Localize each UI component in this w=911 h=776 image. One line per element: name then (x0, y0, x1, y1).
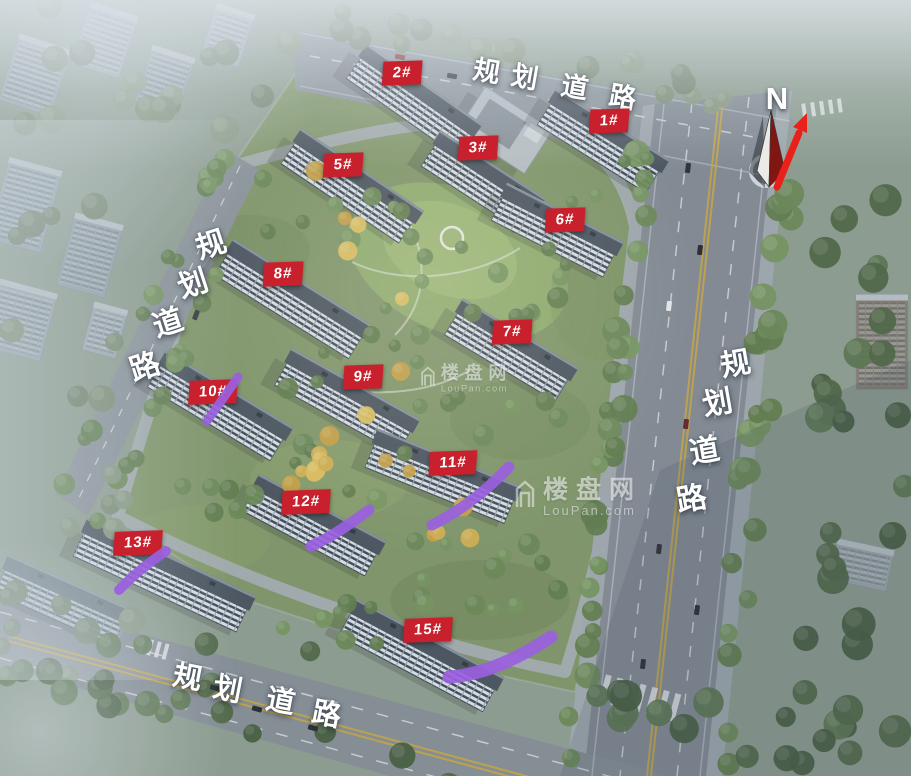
crosswalk (138, 98, 842, 721)
car (252, 705, 263, 712)
building-slab (407, 125, 546, 238)
car (697, 245, 703, 256)
building-badge-1: 1# (589, 108, 629, 133)
road-label-char: 划 (508, 53, 541, 96)
context-block (134, 45, 195, 116)
building-slab (430, 293, 578, 408)
building-badge-6: 6# (545, 207, 585, 232)
loupan-logo-icon (420, 365, 436, 387)
arrow-12 (311, 510, 369, 546)
car (656, 544, 662, 555)
car (210, 684, 221, 691)
building-badge-9: 9# (343, 364, 383, 389)
road-label-char: 路 (672, 472, 709, 521)
residential-buildings (0, 38, 670, 719)
road-north (295, 30, 795, 180)
building-slab (267, 123, 424, 250)
road-label-char: 规 (716, 337, 753, 386)
building-slab (260, 343, 420, 460)
north-arrow (777, 133, 799, 187)
compass-needle-shadow (749, 116, 765, 188)
road-east (584, 92, 778, 776)
context-block (829, 538, 894, 591)
context-block (82, 301, 129, 358)
road-east-sidewalk2 (706, 91, 792, 776)
site-ground (118, 64, 668, 692)
context-block (856, 295, 908, 390)
road-south (0, 596, 670, 776)
road-labels: 规划道路规划道路规划道路规划道路 (0, 0, 911, 776)
road-label-char: 路 (606, 73, 639, 116)
road-west (56, 150, 260, 516)
building-badge-10: 10# (188, 379, 238, 405)
road-label-char: 路 (123, 338, 165, 389)
car (395, 54, 406, 61)
compass-needle-west (757, 110, 771, 187)
car (694, 605, 700, 616)
building-badge-2: 2# (382, 60, 422, 85)
building-context (0, 550, 133, 652)
arrow-15 (449, 637, 551, 677)
context-block (71, 1, 139, 78)
building-badge-15: 15# (403, 617, 453, 643)
road-label-char: 道 (146, 294, 188, 345)
car (308, 724, 319, 731)
north-arrow-head (793, 113, 807, 133)
building-slab (228, 469, 386, 583)
road-label-char: 划 (171, 255, 213, 306)
building-slab (324, 593, 504, 719)
building-slab (351, 425, 523, 531)
building-badge-3: 3# (458, 135, 498, 160)
car (192, 309, 200, 320)
roads (0, 30, 843, 776)
watermark-name: 楼盘网 (441, 364, 512, 383)
internal-road-loop (118, 120, 639, 672)
building-slab (59, 513, 256, 638)
building-slab (332, 38, 483, 163)
context-block (0, 278, 58, 361)
building-slab (133, 345, 293, 467)
car (447, 73, 458, 80)
car (666, 301, 672, 312)
building-badge-8: 8# (263, 261, 303, 286)
context-buildings (0, 1, 908, 591)
podium-building (441, 80, 553, 184)
building-badge-7: 7# (492, 319, 532, 344)
watermark: 楼盘网 LouPan.com (420, 364, 512, 394)
watermark: 楼盘网 LouPan.com (514, 477, 642, 518)
building-badge-5: 5# (323, 152, 363, 177)
courtyard-feature (441, 227, 463, 249)
context-block (56, 212, 124, 297)
compass-north-label: N (766, 81, 788, 117)
building-badge-11: 11# (428, 450, 477, 476)
car (683, 419, 689, 430)
road-label-char: 道 (685, 424, 722, 473)
road-label-char: 道 (558, 63, 591, 106)
road-label-char: 道 (263, 676, 299, 723)
trees (0, 0, 911, 776)
purple-arrows (119, 377, 551, 677)
arrow-13 (119, 551, 166, 590)
building-badge-12: 12# (281, 489, 331, 515)
watermark-domain: LouPan.com (543, 503, 642, 518)
context-block (0, 33, 72, 117)
building-slab (523, 83, 670, 199)
compass-needle-east (769, 110, 785, 187)
building-slab (477, 178, 624, 284)
car (685, 163, 691, 174)
road-label-char: 规 (470, 47, 503, 90)
compass (749, 110, 807, 188)
compass-ring (751, 156, 781, 186)
road-label-char: 规 (170, 652, 206, 699)
annotation-overlay (0, 0, 911, 776)
arrow-10 (207, 377, 238, 421)
context-block (200, 3, 255, 68)
building-badge-13: 13# (113, 530, 163, 556)
watermark-name: 楼盘网 (543, 477, 642, 503)
road-label-char: 规 (189, 216, 231, 267)
building-slab (200, 233, 372, 365)
scene-svg (0, 0, 911, 776)
context-block (0, 157, 63, 253)
haze (0, 0, 911, 776)
road-east-sidewalk (566, 104, 655, 776)
road-label-char: 划 (698, 376, 735, 425)
terrain (0, 0, 911, 776)
watermark-domain: LouPan.com (441, 383, 512, 394)
building-badges: 2#1#3#5#6#8#7#9#10#11#12#13#15# (0, 0, 911, 776)
road-label-char: 划 (210, 664, 246, 711)
loupan-logo-icon (514, 479, 536, 509)
aerial-rendering: 楼盘网 LouPan.com 楼盘网 LouPan.com 规划道路规划道路规划… (0, 0, 911, 776)
courtyard-paths (300, 205, 520, 392)
cars (192, 54, 703, 732)
road-label-char: 路 (309, 689, 345, 736)
arrow-11 (432, 467, 509, 525)
car (640, 659, 646, 670)
